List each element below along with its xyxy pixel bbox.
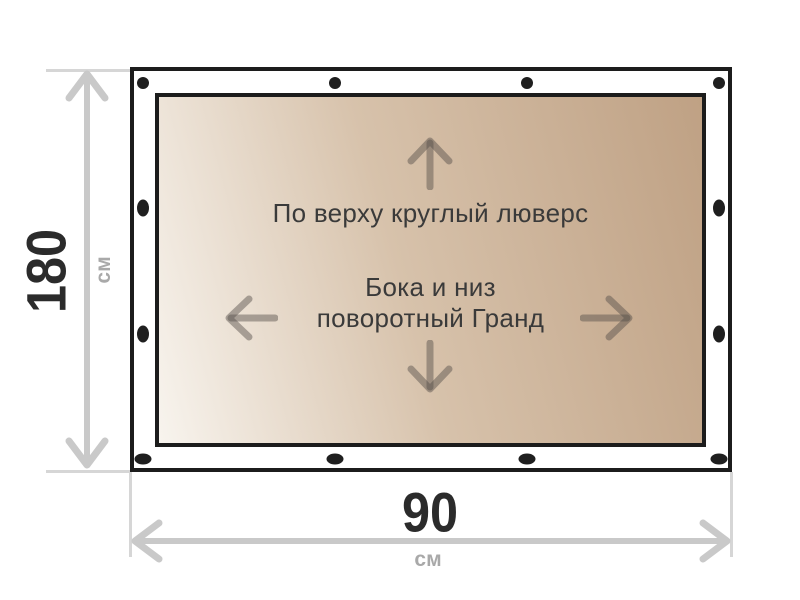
grommet-top-3	[521, 77, 533, 89]
grommet-right-2	[713, 325, 725, 342]
height-value-label: 180	[14, 229, 79, 313]
grommet-top-1	[137, 77, 149, 89]
grommet-bottom-2	[327, 454, 344, 465]
grommet-bottom-3	[519, 454, 536, 465]
height-unit-label: см	[92, 256, 116, 283]
grommet-top-4	[713, 77, 725, 89]
grommet-right-1	[713, 200, 725, 217]
grommet-left-2	[137, 325, 149, 342]
arrow-up-icon	[405, 134, 455, 190]
top-edge-annotation: По верху круглый люверс	[155, 197, 706, 229]
banner-dimension-diagram: 180 см 90 см По верху круглый люверс Бок…	[0, 0, 800, 600]
width-unit-label: см	[414, 548, 441, 572]
width-value-label: 90	[402, 480, 458, 545]
arrow-left-icon	[222, 293, 278, 343]
grommet-left-1	[137, 200, 149, 217]
grommet-bottom-4	[711, 454, 728, 465]
arrow-down-icon	[405, 340, 455, 396]
grommet-bottom-1	[135, 454, 152, 465]
grommet-top-2	[329, 77, 341, 89]
arrow-right-icon	[580, 293, 636, 343]
